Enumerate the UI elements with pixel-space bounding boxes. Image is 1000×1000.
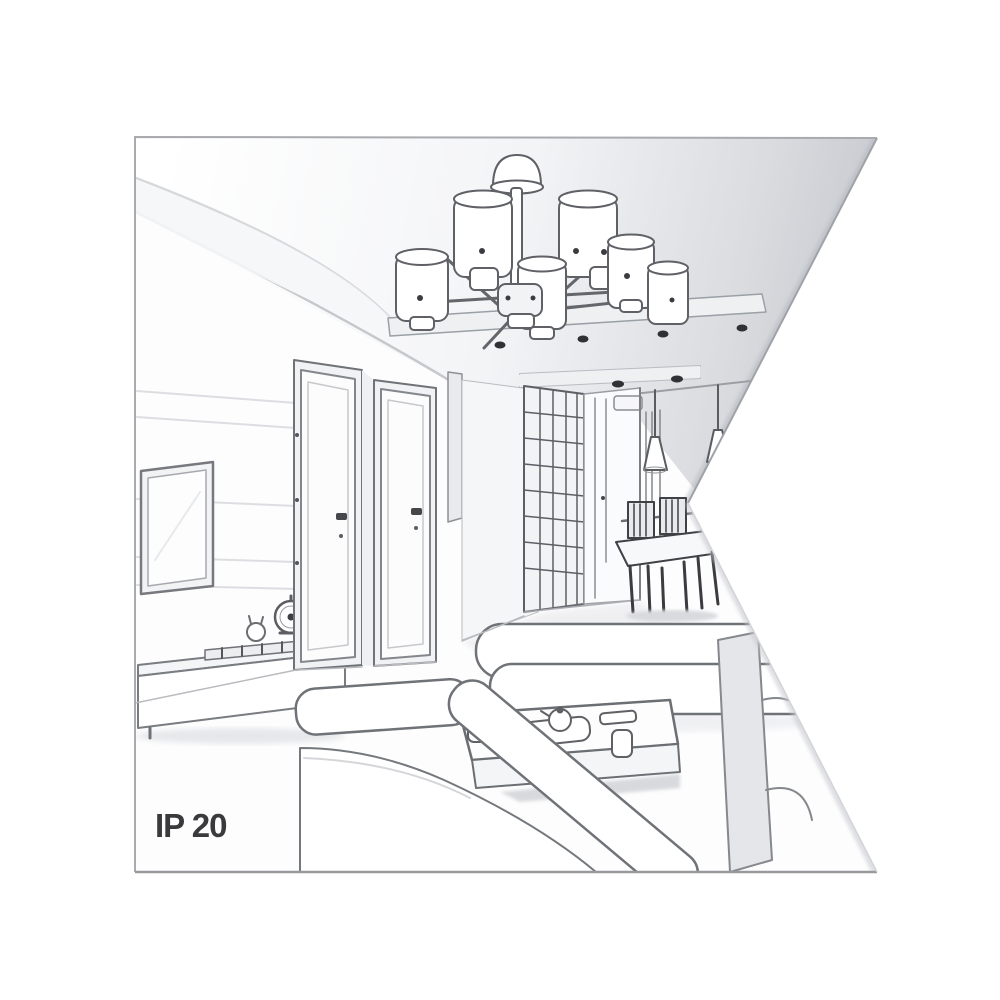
door-right — [374, 380, 436, 666]
dining-chair — [660, 498, 686, 534]
interior-sketch-svg: IP 20 — [0, 0, 1000, 1000]
ip-rating-label: IP 20 — [155, 807, 226, 844]
door-left — [294, 360, 362, 670]
remote — [600, 710, 637, 724]
cup — [612, 730, 632, 757]
chandelier-shade — [454, 191, 512, 291]
door-handle — [336, 513, 347, 520]
hall-ceiling-light — [614, 396, 642, 410]
wall-shadow — [362, 370, 374, 666]
tv — [141, 462, 213, 594]
dining-chair — [628, 502, 654, 538]
door-handle — [411, 508, 422, 515]
sketch-artwork: IP 20 — [0, 0, 1000, 1000]
product-illustration: IP 20 — [0, 0, 1000, 1000]
wardrobe-grid-doors — [524, 386, 584, 612]
wall-pillar — [448, 372, 462, 522]
chandelier-shade — [396, 249, 448, 330]
chandelier-shade — [648, 262, 688, 325]
